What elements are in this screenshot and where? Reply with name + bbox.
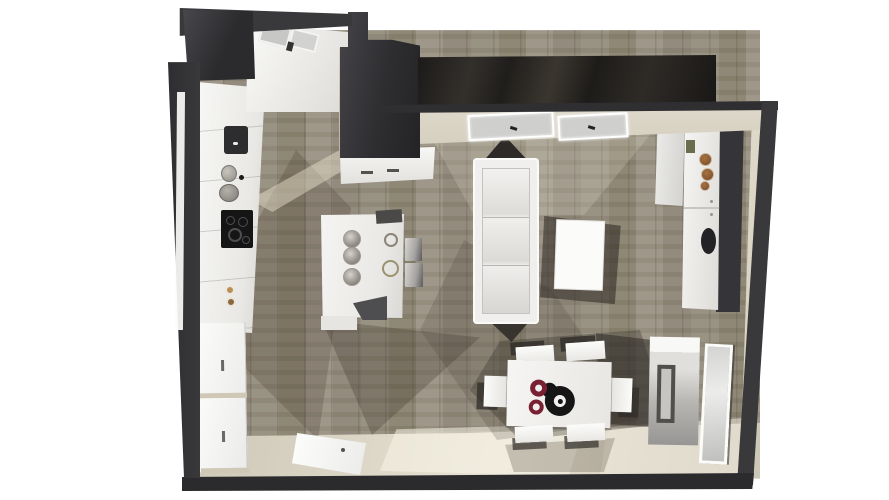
dark-gloss-wall-band	[418, 55, 716, 110]
bar-stool	[405, 263, 423, 287]
centerpiece-red-ring	[529, 399, 544, 414]
door-sill	[201, 468, 249, 474]
cabinet-handle	[387, 169, 399, 172]
wire-trivet	[382, 260, 399, 277]
sideboard-handle-inner	[661, 369, 672, 419]
dining-chair	[483, 376, 509, 408]
decor-bowl	[700, 181, 710, 191]
door	[198, 398, 247, 473]
decor-plant	[686, 140, 695, 153]
wardrobe-shadow	[716, 112, 744, 312]
cooktop	[221, 210, 253, 248]
dark-vase	[701, 228, 716, 254]
cooking-pot	[219, 184, 239, 202]
island-base	[321, 316, 357, 330]
dining-chair	[515, 425, 554, 443]
metal-bowl	[343, 247, 361, 265]
spice-jar	[239, 175, 244, 180]
burner	[242, 236, 250, 244]
bar-stool	[405, 238, 422, 261]
coffee-table	[555, 220, 604, 290]
ceiling-spotlight	[588, 125, 596, 130]
cooking-pot	[221, 165, 237, 182]
metal-bowl	[343, 230, 361, 248]
cushion-seam	[483, 265, 529, 266]
door-handle	[341, 448, 345, 452]
wardrobe-handle	[710, 213, 713, 216]
skylight-window	[467, 111, 554, 141]
island-appliance	[376, 209, 403, 224]
decor-bowl	[699, 153, 712, 166]
cushion-seam	[483, 217, 529, 218]
skylight-window	[557, 112, 628, 141]
sideboard	[648, 337, 700, 446]
cabinet-handle	[361, 171, 373, 174]
jar	[226, 297, 236, 307]
sofa-cushions	[482, 168, 530, 314]
jar	[225, 285, 235, 295]
wire-trivet	[384, 233, 398, 247]
dining-chair	[567, 423, 606, 442]
decor-bowl	[701, 168, 714, 181]
centerpiece-plate	[545, 386, 576, 417]
dining-chair	[565, 341, 605, 362]
dining-table	[506, 360, 611, 428]
appliance-detail	[233, 142, 238, 145]
burner	[238, 217, 248, 227]
door	[198, 323, 246, 397]
door-handle	[222, 431, 225, 442]
coffee-machine	[224, 126, 248, 154]
burner	[228, 228, 242, 242]
plate-dot	[558, 399, 563, 404]
metal-bowl	[343, 268, 361, 286]
ceiling-spotlight	[510, 126, 518, 131]
floorplan-render	[0, 0, 889, 500]
door-handle	[221, 360, 224, 371]
burner	[226, 216, 235, 225]
wardrobe-handle	[710, 200, 713, 203]
wardrobe-seam	[682, 207, 720, 209]
